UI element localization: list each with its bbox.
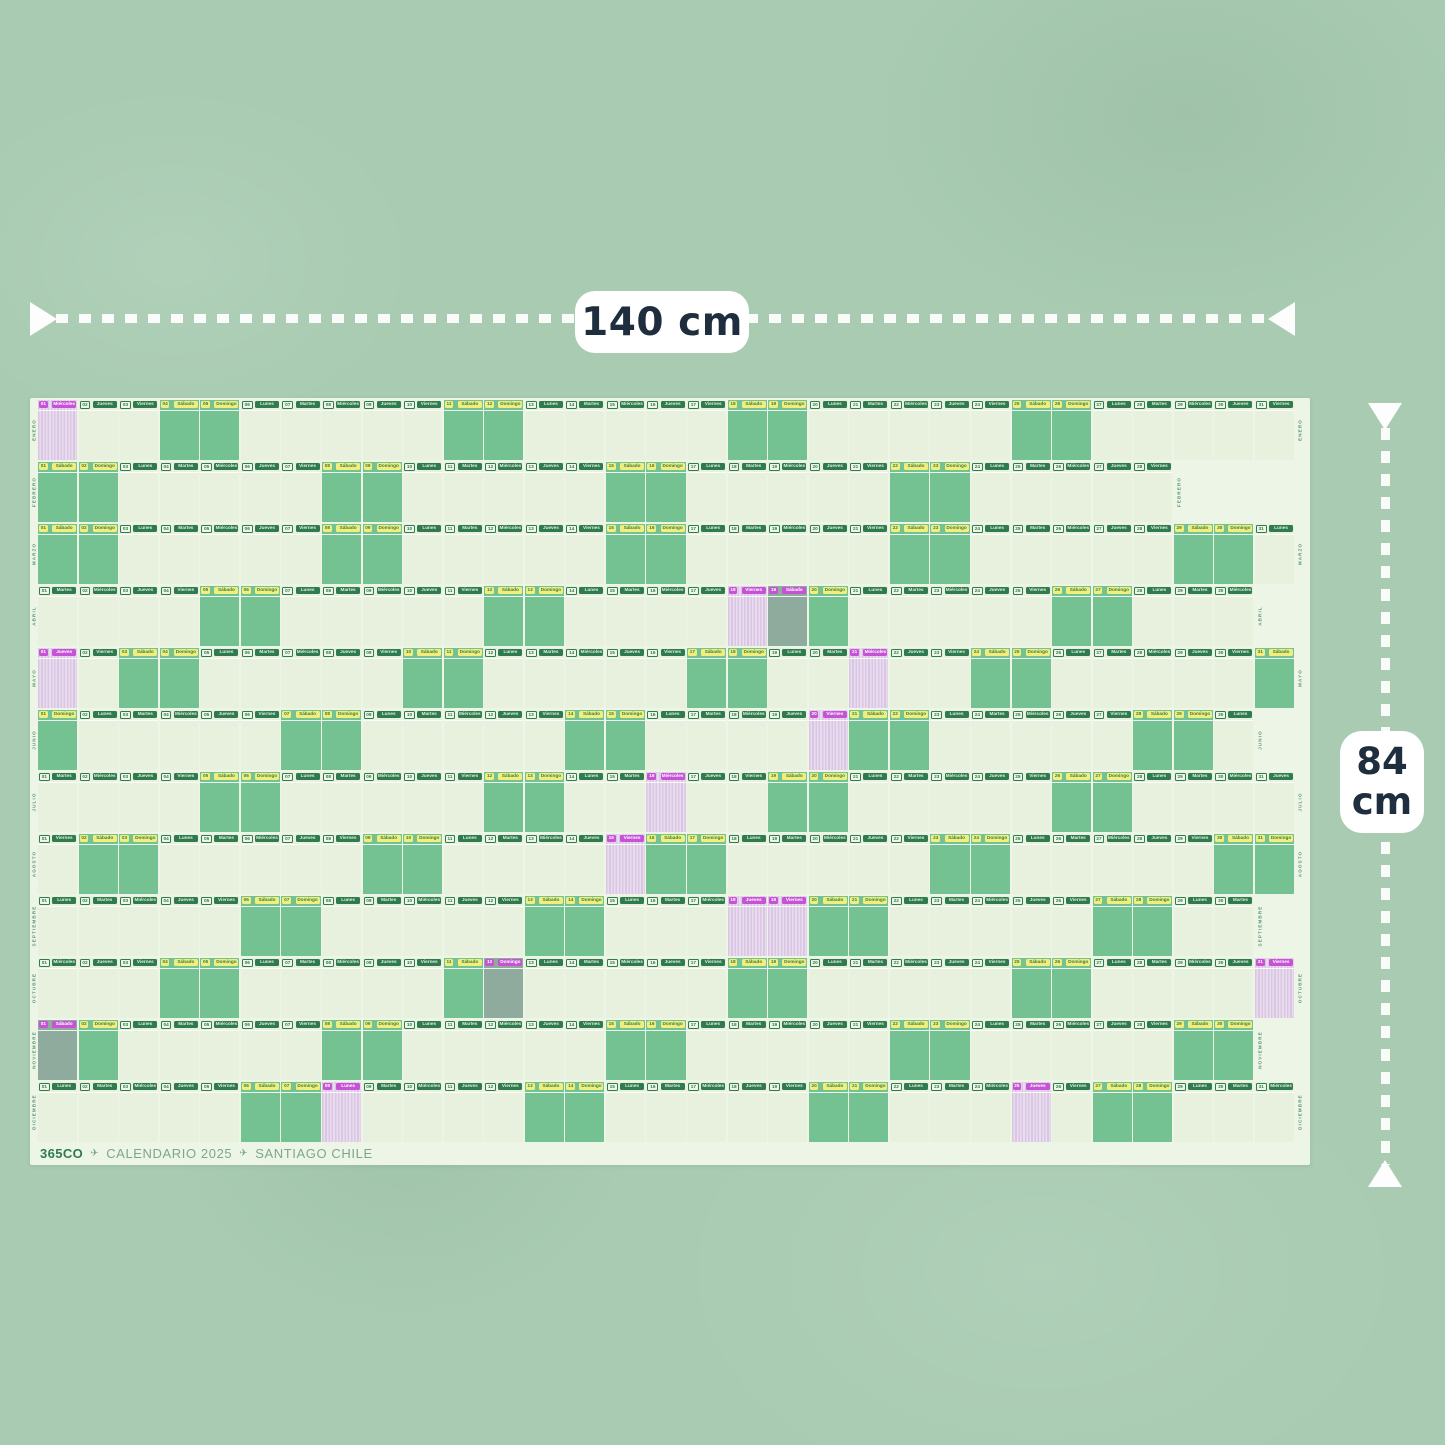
day-cell-header: 23Martes bbox=[930, 1082, 969, 1093]
day-number-chip: 10 bbox=[404, 711, 415, 719]
day-number-chip: 26 bbox=[1053, 463, 1064, 471]
day-number-chip: 27 bbox=[1094, 835, 1105, 843]
day-number-chip: 31 bbox=[1256, 401, 1267, 409]
day-name-chip: Domingo bbox=[1107, 773, 1131, 780]
day-name-chip: Martes bbox=[336, 587, 360, 594]
day-cell-header: 26Martes bbox=[1052, 834, 1091, 845]
day-cell: 29Miércoles bbox=[1174, 400, 1213, 460]
day-name-chip: Lunes bbox=[93, 711, 117, 718]
day-cell-header: 29Lunes bbox=[1174, 896, 1213, 907]
day-number-chip: 03 bbox=[120, 773, 131, 781]
day-cell: 03Lunes bbox=[119, 1020, 158, 1080]
day-number-chip: 19 bbox=[769, 773, 778, 780]
day-name-chip: Jueves bbox=[52, 649, 76, 656]
day-cell-header: 14Viernes bbox=[565, 462, 604, 473]
day-number-chip: 10 bbox=[404, 525, 415, 533]
day-cell-header: 19Miércoles bbox=[768, 462, 807, 473]
day-cell-header: 06Sábado bbox=[241, 896, 280, 907]
day-cell-header: 23Domingo bbox=[930, 462, 969, 473]
day-name-chip: Sábado bbox=[255, 897, 279, 904]
day-cell: 12Domingo bbox=[484, 958, 523, 1018]
day-number-chip: 20 bbox=[810, 959, 821, 967]
day-name-chip: Lunes bbox=[417, 1021, 441, 1028]
day-cell-header: 18Jueves bbox=[728, 1082, 767, 1093]
day-number-chip: 16 bbox=[647, 587, 658, 595]
day-cell: 04Martes bbox=[160, 462, 199, 522]
day-name-chip: Lunes bbox=[1147, 773, 1171, 780]
day-number-chip: 18 bbox=[729, 525, 740, 533]
day-cell-header: 09Miércoles bbox=[363, 586, 402, 597]
day-cell-header: 23Viernes bbox=[930, 648, 969, 659]
day-cell: 13Sábado bbox=[525, 1082, 564, 1142]
day-cell: 15Sábado bbox=[606, 462, 645, 522]
day-cell-header: 02Domingo bbox=[79, 524, 118, 535]
day-name-chip: Viernes bbox=[1188, 835, 1212, 842]
day-name-chip: Martes bbox=[661, 1083, 685, 1090]
day-cell: 18Martes bbox=[728, 462, 767, 522]
day-cell-header: 19Jueves bbox=[768, 710, 807, 721]
day-number-chip: 10 bbox=[404, 587, 415, 595]
day-name-chip: Martes bbox=[377, 1083, 401, 1090]
day-number-chip: 25 bbox=[1013, 773, 1024, 781]
day-cell: 06Martes bbox=[241, 648, 280, 708]
month-label-text: SEPTIEMBRE bbox=[1257, 906, 1262, 947]
day-number-chip: 12 bbox=[485, 1083, 496, 1091]
day-cell: 22Sábado bbox=[890, 1020, 929, 1080]
day-name-chip: Sábado bbox=[498, 587, 522, 594]
day-name-chip: Domingo bbox=[782, 401, 806, 408]
day-name-chip: Domingo bbox=[1188, 711, 1212, 718]
day-cell: 25Sábado bbox=[1012, 400, 1051, 460]
footer-location: SANTIAGO CHILE bbox=[255, 1146, 372, 1161]
height-value: 84 bbox=[1356, 742, 1408, 782]
day-number-chip: 23 bbox=[931, 959, 942, 967]
day-cell: 19Lunes bbox=[768, 648, 807, 708]
day-number-chip: 24 bbox=[972, 401, 983, 409]
day-name-chip: Martes bbox=[1228, 1083, 1252, 1090]
day-cell-header: 25Sábado bbox=[1012, 400, 1051, 411]
day-cell-header: 26Viernes bbox=[1052, 1082, 1091, 1093]
day-name-chip: Miércoles bbox=[661, 587, 685, 594]
day-cell-header: 20Sábado bbox=[809, 896, 848, 907]
day-number-chip: 21 bbox=[850, 711, 859, 718]
day-cell: 04Jueves bbox=[160, 1082, 199, 1142]
day-name-chip: Miércoles bbox=[255, 835, 279, 842]
day-name-chip: Domingo bbox=[1228, 1021, 1252, 1028]
day-number-chip: 10 bbox=[404, 1083, 415, 1091]
brand-name: 365CO bbox=[40, 1146, 83, 1161]
month-label-left-octubre: OCTUBRE bbox=[30, 958, 38, 1018]
day-name-chip: Domingo bbox=[539, 773, 563, 780]
day-number-chip: 28 bbox=[1134, 525, 1145, 533]
day-cell-header: 11Jueves bbox=[444, 1082, 483, 1093]
day-cell: 25Domingo bbox=[1012, 648, 1051, 708]
day-number-chip: 13 bbox=[526, 959, 537, 967]
day-cell-header: 10Jueves bbox=[403, 772, 442, 783]
day-name-chip: Miércoles bbox=[945, 587, 969, 594]
day-number-chip: 30 bbox=[1215, 525, 1224, 532]
day-number-chip: 19 bbox=[769, 1083, 780, 1091]
day-cell: 07Sábado bbox=[281, 710, 320, 770]
day-number-chip: 12 bbox=[485, 773, 494, 780]
day-name-chip: Lunes bbox=[863, 587, 887, 594]
day-cell-header: 26Miércoles bbox=[1052, 1020, 1091, 1031]
day-number-chip: 26 bbox=[1053, 649, 1064, 657]
day-cell: 05Miércoles bbox=[200, 1020, 239, 1080]
day-number-chip: 18 bbox=[729, 1083, 740, 1091]
day-cell: 01Sábado bbox=[38, 524, 77, 584]
day-name-chip: Lunes bbox=[1228, 711, 1252, 718]
day-number-chip: 05 bbox=[201, 1021, 212, 1029]
day-cell-header: 03Miércoles bbox=[119, 1082, 158, 1093]
day-cell-header: 30Sábado bbox=[1214, 834, 1253, 845]
width-value: 140 cm bbox=[581, 300, 743, 345]
day-number-chip: 25 bbox=[1013, 525, 1024, 533]
day-name-chip: Viernes bbox=[863, 525, 887, 532]
day-number-chip: 05 bbox=[201, 463, 212, 471]
day-number-chip: 04 bbox=[161, 897, 172, 905]
day-cell-header: 09Jueves bbox=[363, 400, 402, 411]
day-cell-header: 20Lunes bbox=[809, 958, 848, 969]
day-cell-header: 25Jueves bbox=[1012, 1082, 1051, 1093]
day-name-chip: Miércoles bbox=[539, 835, 563, 842]
month-label-text: SEPTIEMBRE bbox=[32, 906, 37, 947]
day-number-chip: 04 bbox=[161, 1021, 172, 1029]
day-number-chip: 18 bbox=[729, 959, 738, 966]
month-label-right-mayo: MAYO bbox=[1296, 648, 1304, 708]
day-cell-header: 10Martes bbox=[403, 710, 442, 721]
day-cell-header: 24Jueves bbox=[971, 772, 1010, 783]
day-name-chip: Miércoles bbox=[1147, 649, 1171, 656]
day-cell-header: 05Domingo bbox=[200, 400, 239, 411]
day-number-chip: 15 bbox=[607, 463, 616, 470]
day-name-chip: Miércoles bbox=[863, 649, 887, 656]
day-number-chip: 17 bbox=[688, 401, 699, 409]
day-cell: 09Jueves bbox=[363, 400, 402, 460]
day-cell-header: 23Miércoles bbox=[930, 772, 969, 783]
day-name-chip: Lunes bbox=[904, 1083, 928, 1090]
day-cell-header: 11Jueves bbox=[444, 896, 483, 907]
month-label-right-diciembre: DICIEMBRE bbox=[1296, 1082, 1304, 1142]
day-cell: 27Sábado bbox=[1093, 1082, 1132, 1142]
day-cell: 19Domingo bbox=[768, 400, 807, 460]
day-cell-header: 17Lunes bbox=[687, 524, 726, 535]
day-name-chip: Viernes bbox=[904, 835, 928, 842]
day-cell: 20Lunes bbox=[809, 400, 848, 460]
day-cell: 11Sábado bbox=[444, 958, 483, 1018]
day-cell-header: 28Martes bbox=[1133, 958, 1172, 969]
day-cell-header: 14Miércoles bbox=[565, 648, 604, 659]
day-cell: 07Lunes bbox=[281, 586, 320, 646]
day-cell-header: 24Viernes bbox=[971, 958, 1010, 969]
day-cell: 27Viernes bbox=[1093, 710, 1132, 770]
day-cell: 27Jueves bbox=[1093, 524, 1132, 584]
day-number-chip: 10 bbox=[404, 463, 415, 471]
day-cell: 29Lunes bbox=[1174, 1082, 1213, 1142]
day-cell-header: 20Sábado bbox=[809, 1082, 848, 1093]
day-cell: 12Jueves bbox=[484, 710, 523, 770]
day-cell: 14Lunes bbox=[565, 772, 604, 832]
day-cell: 11Jueves bbox=[444, 896, 483, 956]
day-number-chip: 04 bbox=[161, 525, 172, 533]
month-label-text: NOVIEMBRE bbox=[32, 1031, 37, 1069]
day-cell-header: 16Viernes bbox=[646, 648, 685, 659]
day-name-chip: Martes bbox=[458, 525, 482, 532]
day-cell-header: 28Jueves bbox=[1133, 834, 1172, 845]
day-cell-header: 24Lunes bbox=[971, 462, 1010, 473]
day-name-chip: Martes bbox=[133, 711, 157, 718]
day-cell: 07Jueves bbox=[281, 834, 320, 894]
day-name-chip: Lunes bbox=[133, 463, 157, 470]
day-number-chip: 22 bbox=[891, 587, 902, 595]
day-cell-header: 21Viernes bbox=[849, 524, 888, 535]
day-cell-header: 25Viernes bbox=[1012, 586, 1051, 597]
day-number-chip: 03 bbox=[120, 401, 131, 409]
day-number-chip: 16 bbox=[647, 835, 656, 842]
arrow-right-icon bbox=[1268, 302, 1295, 336]
day-cell: 08Lunes bbox=[322, 1082, 361, 1142]
day-cell-header: 09Martes bbox=[363, 1082, 402, 1093]
day-cell: 24Jueves bbox=[971, 772, 1010, 832]
day-number-chip: 21 bbox=[850, 401, 861, 409]
day-cell-header: 31Lunes bbox=[1255, 524, 1294, 535]
day-number-chip: 06 bbox=[242, 959, 253, 967]
day-cell: 14Martes bbox=[565, 958, 604, 1018]
day-cell-header: 08Domingo bbox=[322, 710, 361, 721]
day-name-chip: Miércoles bbox=[904, 401, 928, 408]
day-cell: 10Lunes bbox=[403, 524, 442, 584]
day-cell-header: 13Jueves bbox=[525, 462, 564, 473]
day-cell-header: 17Domingo bbox=[687, 834, 726, 845]
day-cell: 23Domingo bbox=[930, 1020, 969, 1080]
day-cell: 21Viernes bbox=[849, 524, 888, 584]
day-number-chip: 17 bbox=[688, 711, 699, 719]
day-number-chip: 01 bbox=[39, 959, 50, 967]
day-number-chip: 07 bbox=[282, 711, 291, 718]
day-name-chip: Domingo bbox=[1147, 1083, 1171, 1090]
day-cell-header: 16Sábado bbox=[646, 834, 685, 845]
day-name-chip: Jueves bbox=[742, 897, 766, 904]
day-number-chip: 13 bbox=[526, 1083, 535, 1090]
day-number-chip: 30 bbox=[1215, 401, 1226, 409]
day-cell: 06Lunes bbox=[241, 958, 280, 1018]
day-cell-header: 14Martes bbox=[565, 400, 604, 411]
day-cell-header: 21Miércoles bbox=[849, 648, 888, 659]
day-cell: 28Viernes bbox=[1133, 524, 1172, 584]
day-cell: 03Martes bbox=[119, 710, 158, 770]
day-number-chip: 11 bbox=[445, 649, 454, 656]
day-number-chip: 18 bbox=[729, 711, 740, 719]
day-name-chip: Viernes bbox=[255, 711, 279, 718]
day-number-chip: 29 bbox=[1175, 959, 1186, 967]
day-cell: 06Lunes bbox=[241, 400, 280, 460]
day-cell: 24Lunes bbox=[971, 462, 1010, 522]
day-cell: 11Miércoles bbox=[444, 710, 483, 770]
month-label-right-enero: ENERO bbox=[1296, 400, 1304, 460]
day-cell-header: 22Jueves bbox=[890, 648, 929, 659]
day-number-chip: 07 bbox=[282, 959, 293, 967]
day-number-chip: 04 bbox=[161, 1083, 172, 1091]
day-number-chip: 15 bbox=[607, 711, 616, 718]
day-cell: 10Domingo bbox=[403, 834, 442, 894]
day-cell-header: 08Miércoles bbox=[322, 400, 361, 411]
day-cell-header: 05Martes bbox=[200, 834, 239, 845]
day-name-chip: Sábado bbox=[1188, 525, 1212, 532]
day-cell-header: 19Miércoles bbox=[768, 524, 807, 535]
month-label-text: OCTUBRE bbox=[1298, 973, 1303, 1003]
day-number-chip: 25 bbox=[1013, 401, 1022, 408]
day-cell: 23Martes bbox=[930, 1082, 969, 1142]
day-cell: 16Lunes bbox=[646, 710, 685, 770]
month-label-left-abril: ABRIL bbox=[30, 586, 38, 646]
day-cell-header: 11Martes bbox=[444, 524, 483, 535]
day-number-chip: 02 bbox=[80, 1083, 91, 1091]
month-label-left-noviembre: NOVIEMBRE bbox=[30, 1020, 38, 1080]
day-name-chip: Viernes bbox=[1026, 773, 1050, 780]
month-label-right-octubre: OCTUBRE bbox=[1296, 958, 1304, 1018]
day-cell: 29Viernes bbox=[1174, 834, 1213, 894]
day-cell-header: 03Lunes bbox=[119, 1020, 158, 1031]
day-name-chip: Jueves bbox=[1026, 1083, 1050, 1090]
day-cell: 10Miércoles bbox=[403, 896, 442, 956]
day-number-chip: 27 bbox=[1094, 401, 1105, 409]
day-cell: 03Domingo bbox=[119, 834, 158, 894]
day-name-chip: Martes bbox=[1107, 649, 1131, 656]
day-number-chip: 29 bbox=[1175, 711, 1184, 718]
day-cell-header: 08Lunes bbox=[322, 1082, 361, 1093]
day-cell: 01Jueves bbox=[38, 648, 77, 708]
day-cell: 18Sábado bbox=[728, 400, 767, 460]
day-number-chip: 30 bbox=[1215, 1083, 1226, 1091]
day-cell: 05Sábado bbox=[200, 772, 239, 832]
day-name-chip: Miércoles bbox=[1107, 835, 1131, 842]
day-name-chip: Domingo bbox=[52, 711, 76, 718]
day-cell: 02Domingo bbox=[79, 524, 118, 584]
day-name-chip: Domingo bbox=[620, 711, 644, 718]
day-name-chip: Sábado bbox=[904, 525, 928, 532]
day-cell: 26Miércoles bbox=[1052, 462, 1091, 522]
day-number-chip: 23 bbox=[931, 1021, 940, 1028]
day-cell-header: 02Jueves bbox=[79, 958, 118, 969]
day-number-chip: 05 bbox=[201, 897, 212, 905]
day-name-chip: Miércoles bbox=[133, 1083, 157, 1090]
day-cell: 13Domingo bbox=[525, 586, 564, 646]
day-cell-header: 28Sábado bbox=[1133, 710, 1172, 721]
day-cell-header: 13Jueves bbox=[525, 1020, 564, 1031]
day-cell: 15Sábado bbox=[606, 1020, 645, 1080]
day-cell-header: 25Martes bbox=[1012, 524, 1051, 535]
day-number-chip: 29 bbox=[1175, 835, 1186, 843]
month-label-text: DICIEMBRE bbox=[32, 1094, 37, 1130]
day-name-chip: Domingo bbox=[133, 835, 157, 842]
day-cell: 28Viernes bbox=[1133, 462, 1172, 522]
day-cell: 07Viernes bbox=[281, 462, 320, 522]
day-name-chip: Lunes bbox=[336, 1083, 360, 1090]
day-cell-header: 21Lunes bbox=[849, 586, 888, 597]
day-cell: 27Miércoles bbox=[1093, 834, 1132, 894]
day-number-chip: 29 bbox=[1175, 649, 1186, 657]
day-cell-header: 31Viernes bbox=[1255, 400, 1294, 411]
month-label-text: NOVIEMBRE bbox=[1257, 1031, 1262, 1069]
day-cell-header: 09Domingo bbox=[363, 524, 402, 535]
day-cell-header: 08Viernes bbox=[322, 834, 361, 845]
day-name-chip: Lunes bbox=[823, 959, 847, 966]
day-cell: 24Jueves bbox=[971, 586, 1010, 646]
day-cell: 18Jueves bbox=[728, 1082, 767, 1142]
day-cell: 22Domingo bbox=[890, 710, 929, 770]
day-cell-header: 24Sábado bbox=[971, 648, 1010, 659]
day-number-chip: 28 bbox=[1134, 1083, 1143, 1090]
day-name-chip: Lunes bbox=[1147, 587, 1171, 594]
day-name-chip: Viernes bbox=[661, 649, 685, 656]
day-cell: 31Lunes bbox=[1255, 524, 1294, 584]
day-cell: 14Martes bbox=[565, 400, 604, 460]
day-name-chip: Jueves bbox=[1107, 1021, 1131, 1028]
day-number-chip: 27 bbox=[1094, 773, 1103, 780]
day-cell-header: 19Martes bbox=[768, 834, 807, 845]
day-number-chip: 06 bbox=[242, 897, 251, 904]
day-cell: 31Domingo bbox=[1255, 834, 1294, 894]
day-number-chip: 12 bbox=[485, 649, 496, 657]
day-cell: 24Miércoles bbox=[971, 1082, 1010, 1142]
day-number-chip: 13 bbox=[526, 401, 537, 409]
day-cell-header: 08Miércoles bbox=[322, 958, 361, 969]
day-cell-header: 15Martes bbox=[606, 586, 645, 597]
day-name-chip: Jueves bbox=[255, 525, 279, 532]
day-number-chip: 28 bbox=[1134, 897, 1143, 904]
day-cell: 20Jueves bbox=[809, 1020, 848, 1080]
day-name-chip: Jueves bbox=[498, 711, 522, 718]
day-cell-header: 05Sábado bbox=[200, 772, 239, 783]
day-number-chip: 02 bbox=[80, 1021, 89, 1028]
day-number-chip: 26 bbox=[1053, 773, 1062, 780]
height-dimension-label: 84 cm bbox=[1340, 731, 1424, 833]
day-cell-header: 26Sábado bbox=[1052, 772, 1091, 783]
day-number-chip: 01 bbox=[39, 711, 48, 718]
day-name-chip: Viernes bbox=[1147, 525, 1171, 532]
day-cell: 18Jueves bbox=[728, 896, 767, 956]
day-cell: 12Sábado bbox=[484, 772, 523, 832]
day-cell-header: 21Jueves bbox=[849, 834, 888, 845]
day-cell: 14Lunes bbox=[565, 586, 604, 646]
day-number-chip: 11 bbox=[445, 1021, 456, 1029]
day-cell-header: 11Domingo bbox=[444, 648, 483, 659]
day-number-chip: 05 bbox=[201, 711, 212, 719]
day-name-chip: Martes bbox=[52, 773, 76, 780]
day-name-chip: Viernes bbox=[620, 835, 644, 842]
day-cell: 12Miércoles bbox=[484, 524, 523, 584]
day-cell: 21Martes bbox=[849, 400, 888, 460]
day-cell: 09Miércoles bbox=[363, 772, 402, 832]
day-number-chip: 12 bbox=[485, 897, 496, 905]
day-cell: 02Martes bbox=[79, 1082, 118, 1142]
day-cell-header: 30Domingo bbox=[1214, 1020, 1253, 1031]
day-cell-header: 10Miércoles bbox=[403, 1082, 442, 1093]
day-cell: 19Miércoles bbox=[768, 1020, 807, 1080]
day-name-chip: Viernes bbox=[701, 401, 725, 408]
day-name-chip: Lunes bbox=[458, 835, 482, 842]
day-name-chip: Miércoles bbox=[133, 897, 157, 904]
day-name-chip: Jueves bbox=[1188, 649, 1212, 656]
day-cell: 28Viernes bbox=[1133, 1020, 1172, 1080]
day-cell-header: 18Viernes bbox=[728, 586, 767, 597]
day-number-chip: 20 bbox=[810, 1021, 821, 1029]
day-name-chip: Domingo bbox=[823, 773, 847, 780]
day-name-chip: Lunes bbox=[701, 525, 725, 532]
day-cell: 31Miércoles bbox=[1255, 1082, 1294, 1142]
day-cell-header: 15Miércoles bbox=[606, 400, 645, 411]
day-cell: 23Miércoles bbox=[930, 586, 969, 646]
